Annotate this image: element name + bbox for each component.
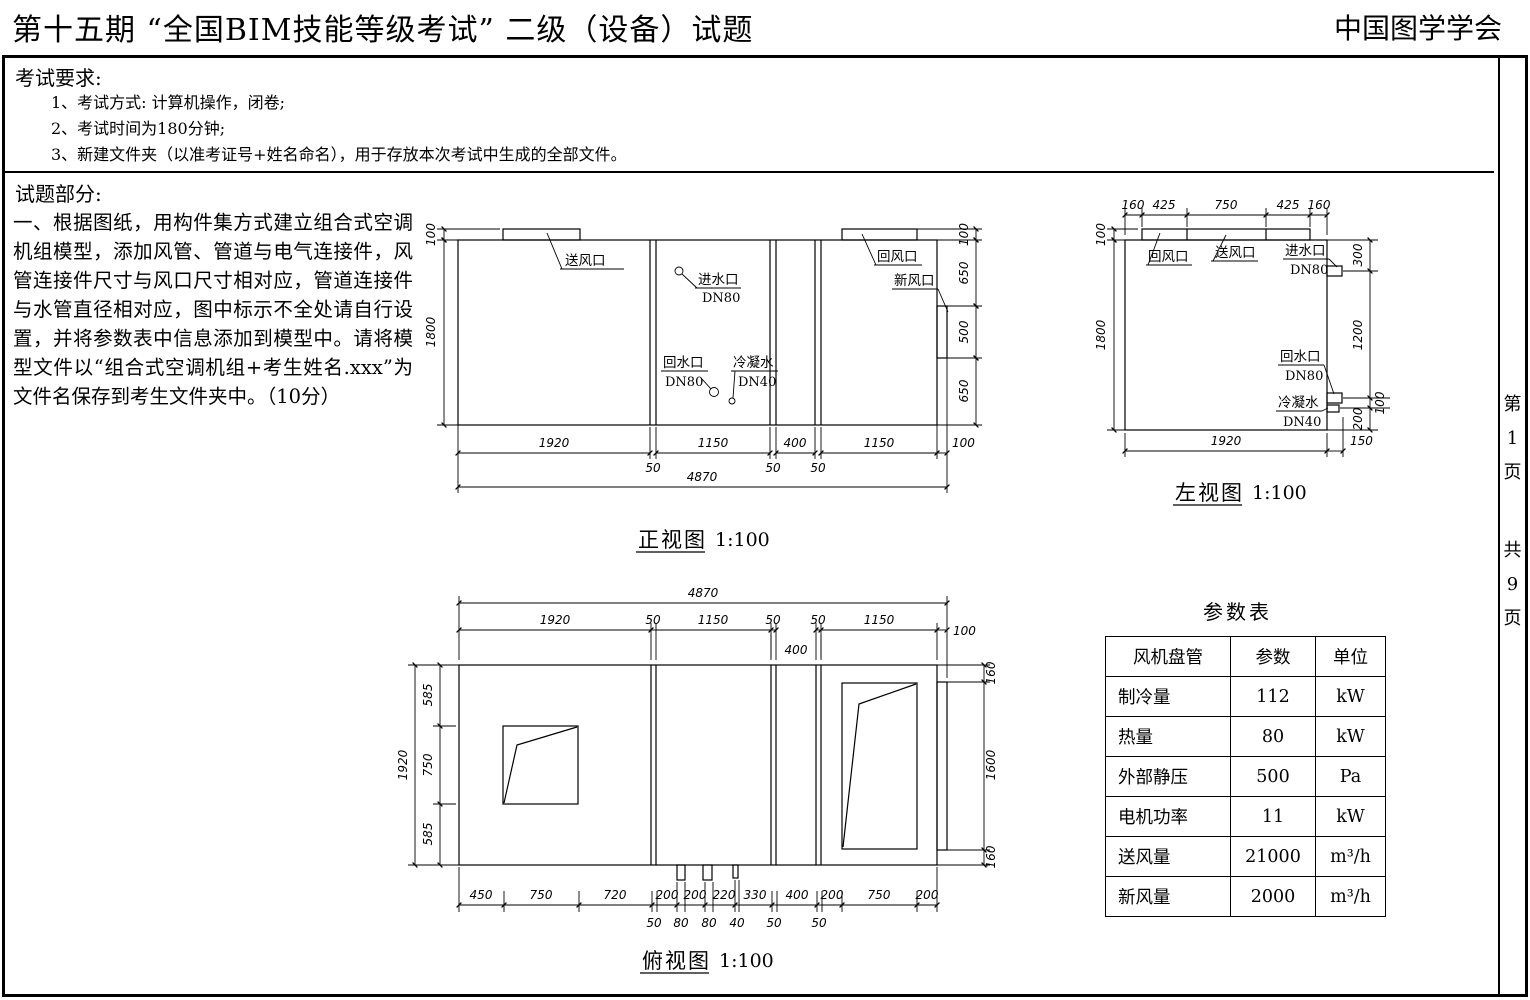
label-fresh-air: 新风口 bbox=[894, 273, 935, 289]
page-indicator-char: 页 bbox=[1504, 456, 1522, 490]
param-unit: kW bbox=[1316, 717, 1386, 757]
left-view-caption: 左视图 1:100 bbox=[1173, 481, 1307, 505]
label-water-inlet: 进水口 bbox=[1285, 243, 1326, 259]
view-scale: 1:100 bbox=[719, 950, 774, 972]
view-title: 俯视图 bbox=[642, 949, 711, 973]
dim-label: 160 bbox=[984, 661, 998, 684]
param-name: 新风量 bbox=[1106, 877, 1231, 917]
dim-label: 100 bbox=[953, 624, 976, 638]
left-view-drawing: 回风口 送风口 进水口 DN80 回水口 DN80 冷凝水 DN40 bbox=[1080, 195, 1440, 525]
dim-label: 100 bbox=[1373, 391, 1387, 414]
param-value: 11 bbox=[1231, 797, 1316, 837]
content-frame: 考试要求: 1、考试方式: 计算机操作，闭卷; 2、考试时间为180分钟; 3、… bbox=[2, 55, 1528, 997]
parameter-table: 风机盘管 参数 单位 制冷量 112 kW 热量 80 kW 外部静压 500 … bbox=[1105, 636, 1386, 917]
dim-label: 650 bbox=[957, 379, 971, 402]
dim-label: 160 bbox=[1308, 198, 1331, 212]
label-water-inlet: 进水口 bbox=[698, 272, 739, 288]
page-indicator-char: 共 bbox=[1504, 534, 1522, 568]
organization-name: 中国图学学会 bbox=[1334, 7, 1502, 47]
label-water-return: 回水口 bbox=[1280, 349, 1321, 365]
title-bar: 第十五期 “全国BIM技能等级考试” 二级（设备）试题 中国图学学会 bbox=[0, 0, 1530, 55]
view-title: 正视图 bbox=[638, 528, 707, 552]
dim-label: 50 bbox=[645, 613, 661, 627]
table-row: 外部静压 500 Pa bbox=[1106, 757, 1386, 797]
requirement-item-2: 2、考试时间为180分钟; bbox=[51, 115, 225, 139]
front-view-caption: 正视图 1:100 bbox=[636, 528, 770, 552]
dim-label: 1920 bbox=[540, 613, 571, 627]
label-water-inlet-dn: DN80 bbox=[702, 291, 740, 306]
label-supply-air: 送风口 bbox=[565, 253, 606, 269]
dim-label: 1800 bbox=[424, 316, 438, 347]
table-row: 新风量 2000 m³/h bbox=[1106, 877, 1386, 917]
param-name: 外部静压 bbox=[1106, 757, 1231, 797]
left-view-labels: 回风口 送风口 进水口 DN80 回水口 DN80 冷凝水 DN40 bbox=[1146, 233, 1337, 430]
condensate-pipe-stub bbox=[1327, 405, 1339, 412]
label-condensate-dn: DN40 bbox=[1283, 415, 1321, 430]
param-value: 2000 bbox=[1231, 877, 1316, 917]
dim-label: 1150 bbox=[698, 436, 729, 450]
requirements-heading: 考试要求: bbox=[15, 62, 102, 91]
table-header-row: 风机盘管 参数 单位 bbox=[1106, 637, 1386, 677]
param-unit: Pa bbox=[1316, 757, 1386, 797]
dim-label: 4870 bbox=[688, 586, 719, 600]
view-title: 左视图 bbox=[1175, 481, 1244, 505]
ahu-body-top bbox=[459, 665, 947, 880]
dim-label: 50 bbox=[765, 613, 781, 627]
dim-label: 750 bbox=[868, 888, 891, 902]
dim-label: 100 bbox=[952, 436, 975, 450]
dim-label: 750 bbox=[421, 753, 435, 776]
dim-label: 200 bbox=[656, 888, 679, 902]
label-condensate-dn: DN40 bbox=[738, 375, 776, 390]
dim-label: 40 bbox=[729, 916, 745, 930]
dim-label: 1200 bbox=[1351, 319, 1365, 350]
dim-label: 425 bbox=[1277, 198, 1300, 212]
dim-label: 50 bbox=[765, 461, 781, 475]
param-unit: m³/h bbox=[1316, 877, 1386, 917]
inlet-pipe-stub bbox=[1327, 266, 1342, 276]
table-row: 电机功率 11 kW bbox=[1106, 797, 1386, 837]
label-water-inlet-dn: DN80 bbox=[1290, 263, 1328, 278]
table-row: 热量 80 kW bbox=[1106, 717, 1386, 757]
top-view-dimensions-left: 585 750 585 1920 bbox=[396, 665, 459, 865]
top-view-caption: 俯视图 1:100 bbox=[640, 949, 774, 973]
exam-sheet: 第十五期 “全国BIM技能等级考试” 二级（设备）试题 中国图学学会 考试要求:… bbox=[0, 0, 1530, 1000]
param-name: 热量 bbox=[1106, 717, 1231, 757]
label-condensate: 冷凝水 bbox=[1278, 395, 1319, 411]
label-return-air: 回风口 bbox=[877, 249, 918, 265]
label-condensate: 冷凝水 bbox=[733, 355, 774, 371]
param-value: 500 bbox=[1231, 757, 1316, 797]
table-header-cell: 风机盘管 bbox=[1106, 637, 1231, 677]
dim-label: 100 bbox=[957, 223, 971, 246]
return-outlet-top bbox=[842, 229, 917, 240]
dim-label: 330 bbox=[744, 888, 767, 902]
supply-outlet-top bbox=[503, 229, 580, 240]
dim-label: 100 bbox=[1094, 223, 1108, 246]
dim-label: 50 bbox=[646, 916, 662, 930]
label-water-return: 回水口 bbox=[663, 355, 704, 371]
param-name: 制冷量 bbox=[1106, 677, 1231, 717]
param-name: 电机功率 bbox=[1106, 797, 1231, 837]
param-unit: m³/h bbox=[1316, 837, 1386, 877]
fresh-air-protrusion bbox=[937, 306, 947, 358]
page-indicator-char: 页 bbox=[1504, 602, 1522, 636]
param-name: 送风量 bbox=[1106, 837, 1231, 877]
label-return-air: 回风口 bbox=[1148, 249, 1189, 265]
label-water-return-dn: DN80 bbox=[665, 375, 703, 390]
label-supply-air: 送风口 bbox=[1215, 245, 1256, 261]
dim-label: 650 bbox=[957, 261, 971, 284]
label-water-return-dn: DN80 bbox=[1285, 369, 1323, 384]
top-view-dimensions-top: 4870 1920 50 1150 50 50 1150 100 bbox=[459, 586, 976, 678]
dim-label: 1600 bbox=[984, 749, 998, 780]
coil-swirl-line bbox=[843, 684, 916, 847]
dim-label: 1150 bbox=[698, 613, 729, 627]
page-title: 第十五期 “全国BIM技能等级考试” 二级（设备）试题 bbox=[12, 5, 753, 49]
pipe-stub-1 bbox=[677, 865, 685, 880]
page-number-column: 第 1 页 共 9 页 bbox=[1498, 58, 1525, 994]
dim-label: 720 bbox=[604, 888, 627, 902]
view-scale: 1:100 bbox=[1252, 482, 1307, 504]
front-labels: 送风口 进水口 DN80 回风口 新风口 回水口 DN80 冷凝水 bbox=[547, 233, 948, 404]
dim-label: 160 bbox=[984, 845, 998, 868]
dim-label: 750 bbox=[1215, 198, 1238, 212]
dim-label: 200 bbox=[684, 888, 707, 902]
question-section-heading: 试题部分: bbox=[15, 178, 102, 207]
dim-label: 1920 bbox=[396, 749, 410, 780]
dim-label: 50 bbox=[810, 461, 826, 475]
dim-label: 100 bbox=[424, 223, 438, 246]
top-view-dimensions-right: 160 1600 160 bbox=[937, 661, 998, 868]
dim-label: 425 bbox=[1153, 198, 1176, 212]
page-indicator-char: 1 bbox=[1507, 422, 1518, 456]
view-scale: 1:100 bbox=[715, 529, 770, 551]
dim-label: 1800 bbox=[1094, 319, 1108, 350]
dim-label: 1920 bbox=[539, 436, 570, 450]
table-row: 送风量 21000 m³/h bbox=[1106, 837, 1386, 877]
dim-label: 50 bbox=[811, 916, 827, 930]
dim-label: 400 bbox=[785, 643, 808, 657]
dim-label: 1920 bbox=[1211, 434, 1242, 448]
dim-label: 1150 bbox=[864, 613, 895, 627]
table-header-cell: 单位 bbox=[1316, 637, 1386, 677]
fan-swirl-line bbox=[504, 727, 577, 803]
dim-label: 585 bbox=[421, 823, 435, 846]
dim-label: 200 bbox=[916, 888, 939, 902]
dim-label: 50 bbox=[645, 461, 661, 475]
page-indicator-char: 9 bbox=[1507, 568, 1518, 602]
side-protrusion bbox=[937, 682, 947, 850]
param-value: 112 bbox=[1231, 677, 1316, 717]
pipe-stub-2 bbox=[703, 865, 712, 880]
table-row: 制冷量 112 kW bbox=[1106, 677, 1386, 717]
dim-label: 200 bbox=[821, 888, 844, 902]
parameter-table-title: 参数表 bbox=[1105, 596, 1370, 625]
left-view-dimensions: 160 425 750 425 160 100 1800 bbox=[1094, 198, 1390, 457]
dim-label: 50 bbox=[766, 916, 782, 930]
ahu-body-front bbox=[458, 229, 947, 425]
dim-label: 160 bbox=[1122, 198, 1145, 212]
coil-opening bbox=[842, 683, 917, 849]
dim-label: 500 bbox=[957, 320, 971, 343]
requirement-item-1: 1、考试方式: 计算机操作，闭卷; bbox=[51, 89, 285, 113]
dim-label: 750 bbox=[530, 888, 553, 902]
dim-label: 400 bbox=[786, 888, 809, 902]
param-value: 21000 bbox=[1231, 837, 1316, 877]
top-view-dimensions-bottom: 450 750 720 200 200 220 330 400 200 750 … bbox=[459, 867, 939, 930]
top-view-drawing: 4870 1920 50 1150 50 50 1150 100 bbox=[390, 575, 1015, 987]
dim-label: 220 bbox=[713, 888, 736, 902]
return-pipe-stub bbox=[1327, 393, 1342, 403]
param-unit: kW bbox=[1316, 797, 1386, 837]
dim-label: 300 bbox=[1351, 243, 1365, 266]
table-header-cell: 参数 bbox=[1231, 637, 1316, 677]
dim-label: 585 bbox=[421, 684, 435, 707]
page-indicator-char: 第 bbox=[1504, 388, 1522, 422]
dim-label: 4870 bbox=[687, 470, 718, 484]
dim-label: 200 bbox=[1351, 407, 1365, 430]
param-unit: kW bbox=[1316, 677, 1386, 717]
requirement-item-3: 3、新建文件夹（以准考证号+姓名命名），用于存放本次考试中生成的全部文件。 bbox=[51, 141, 627, 165]
dim-label: 450 bbox=[470, 888, 493, 902]
front-view-drawing: 送风口 进水口 DN80 回风口 新风口 回水口 DN80 冷凝水 bbox=[410, 195, 1010, 565]
dim-label: 1150 bbox=[864, 436, 895, 450]
dim-label: 150 bbox=[1350, 434, 1373, 448]
pipe-stub-3 bbox=[733, 865, 738, 878]
dim-label: 50 bbox=[810, 613, 826, 627]
question-text: 一、根据图纸，用构件集方式建立组合式空调机组模型，添加风管、管道与电气连接件，风… bbox=[13, 208, 413, 411]
section-divider bbox=[5, 171, 1494, 173]
param-value: 80 bbox=[1231, 717, 1316, 757]
dim-label: 80 bbox=[701, 916, 717, 930]
dim-label: 80 bbox=[673, 916, 689, 930]
dim-label: 400 bbox=[784, 436, 807, 450]
